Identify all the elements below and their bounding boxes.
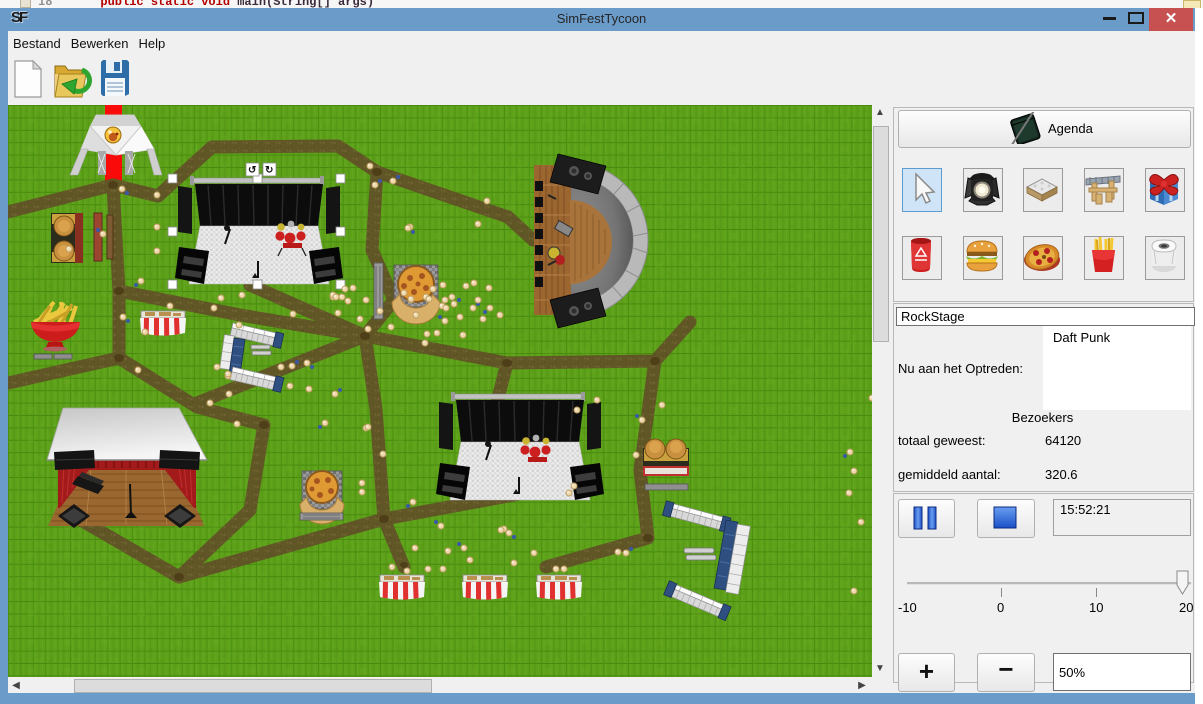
svg-text:↺: ↺ bbox=[248, 165, 256, 176]
svg-text:↻: ↻ bbox=[265, 165, 273, 176]
